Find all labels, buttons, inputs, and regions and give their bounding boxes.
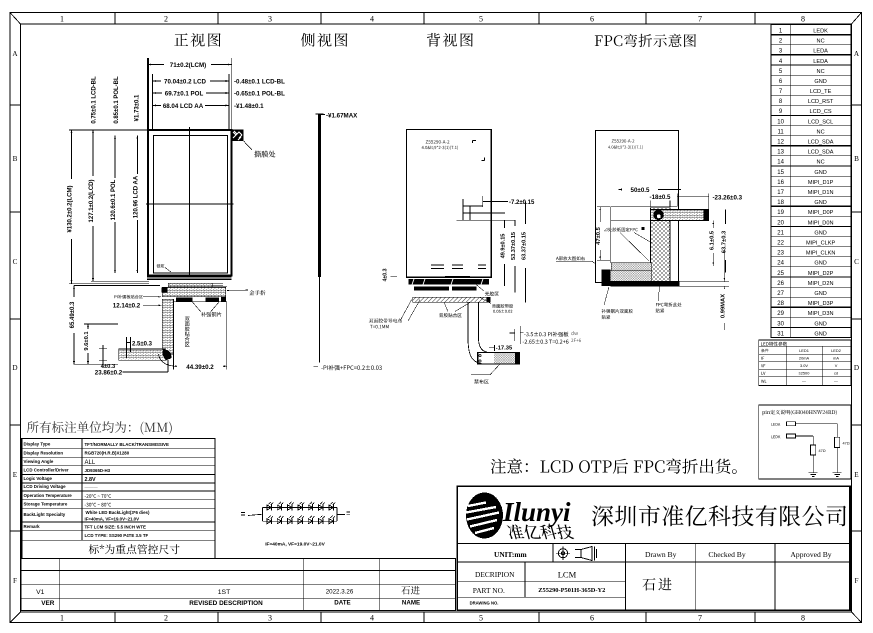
svg-text:13: 13 xyxy=(777,150,784,156)
svg-text:≥2500: ≥2500 xyxy=(799,371,811,376)
svg-text:-0.48±0.1 LCD-BL: -0.48±0.1 LCD-BL xyxy=(234,79,285,86)
svg-text:GND: GND xyxy=(814,200,826,206)
svg-text:LEDA: LEDA xyxy=(813,49,828,55)
svg-text:12: 12 xyxy=(777,140,784,146)
svg-text:-¥1.67MAX: -¥1.67MAX xyxy=(326,112,358,119)
svg-text:NC: NC xyxy=(817,160,825,166)
svg-text:LCD_CS: LCD_CS xyxy=(810,109,832,115)
svg-text:JD9365D-H3: JD9365D-H3 xyxy=(85,468,111,473)
svg-text:D: D xyxy=(854,364,859,372)
svg-text:White LED BackLight(3*6 dies): White LED BackLight(3*6 dies) xyxy=(86,510,150,515)
svg-text:MIPI_D3N: MIPI_D3N xyxy=(808,311,834,317)
svg-text:-18±0.5: -18±0.5 xyxy=(650,194,671,201)
svg-text:F: F xyxy=(13,577,17,585)
svg-text:LCM: LCM xyxy=(558,570,577,580)
svg-text:Operation Temperature: Operation Temperature xyxy=(24,493,73,498)
svg-text:Display Type: Display Type xyxy=(24,442,51,447)
svg-text:LEDA: LEDA xyxy=(813,59,828,65)
svg-text:6.1±0.5: 6.1±0.5 xyxy=(709,230,715,250)
svg-text:1ST: 1ST xyxy=(218,589,230,596)
svg-text:MIPI_D3P: MIPI_D3P xyxy=(808,301,834,307)
svg-text:7: 7 xyxy=(698,614,702,623)
svg-text:———: ——— xyxy=(85,485,99,490)
svg-text:47Ω: 47Ω xyxy=(818,449,825,453)
svg-text:MIPI_D2N: MIPI_D2N xyxy=(808,281,834,287)
svg-text:GND: GND xyxy=(814,291,826,297)
svg-text:63.37±0.15: 63.37±0.15 xyxy=(522,232,528,260)
svg-text:Z55290-P501H-365D-Y2: Z55290-P501H-365D-Y2 xyxy=(538,587,605,594)
svg-text:—: — xyxy=(802,379,806,384)
svg-text:C: C xyxy=(13,258,18,266)
svg-text:14: 14 xyxy=(777,160,784,166)
svg-text:53.37±0.15: 53.37±0.15 xyxy=(511,232,517,260)
svg-text:LED2: LED2 xyxy=(831,348,841,353)
svg-text:19: 19 xyxy=(777,210,784,216)
svg-text:6: 6 xyxy=(590,614,594,623)
svg-text:ALL: ALL xyxy=(85,460,96,466)
svg-text:V: V xyxy=(835,363,838,368)
svg-text:22: 22 xyxy=(777,241,784,247)
svg-text:18: 18 xyxy=(777,200,784,206)
svg-text:16: 16 xyxy=(777,180,784,186)
svg-text:-¥1.48±0.1: -¥1.48±0.1 xyxy=(234,103,264,110)
svg-text:3: 3 xyxy=(268,614,272,623)
svg-text:Display Resolution: Display Resolution xyxy=(24,450,64,455)
svg-text:LCD_SCL: LCD_SCL xyxy=(808,119,833,125)
svg-text:63.7±0.3: 63.7±0.3 xyxy=(722,230,728,253)
svg-text:BackLight Specialty: BackLight Specialty xyxy=(24,512,66,517)
svg-text:127.1±0.2(LCD): 127.1±0.2(LCD) xyxy=(89,180,95,223)
svg-text:MIPI_D2P: MIPI_D2P xyxy=(808,271,834,277)
svg-text:LCD_RST: LCD_RST xyxy=(808,99,834,105)
svg-text:LCD TYPE: SS290 P4TE 3.5 TF: LCD TYPE: SS290 P4TE 3.5 TF xyxy=(85,533,149,538)
svg-text:47±0.5: 47±0.5 xyxy=(596,226,602,244)
svg-text:20: 20 xyxy=(777,220,784,226)
svg-text:8: 8 xyxy=(801,614,805,623)
svg-text:20mA: 20mA xyxy=(799,356,810,361)
svg-text:GND: GND xyxy=(814,230,826,236)
svg-text:5: 5 xyxy=(479,15,483,24)
svg-text:A: A xyxy=(854,50,860,58)
svg-text:TFT/NORMALLY BLACK/TRANSMISSIV: TFT/NORMALLY BLACK/TRANSMISSIVE xyxy=(85,442,169,447)
svg-text:LCD Driving Voltage: LCD Driving Voltage xyxy=(24,484,67,489)
svg-text:A: A xyxy=(12,50,18,58)
svg-text:E: E xyxy=(13,471,18,479)
svg-text:IF=40mA, VF=19.0V~21.0V: IF=40mA, VF=19.0V~21.0V xyxy=(265,542,325,548)
svg-text:2: 2 xyxy=(164,15,168,24)
svg-text:—: — xyxy=(834,379,838,384)
svg-text:MIPI_D1P: MIPI_D1P xyxy=(808,180,834,186)
svg-text:MIPI_CLKN: MIPI_CLKN xyxy=(806,251,836,257)
svg-text:DECRIPION: DECRIPION xyxy=(475,570,515,579)
svg-text:MIPI_D0P: MIPI_D0P xyxy=(808,210,834,216)
svg-text:49.9±0.15: 49.9±0.15 xyxy=(501,234,507,259)
svg-text:0.75±0.1 LCD-BL: 0.75±0.1 LCD-BL xyxy=(92,76,98,124)
svg-text:cd: cd xyxy=(834,371,838,376)
svg-text:-23.26±0.3: -23.26±0.3 xyxy=(713,194,743,201)
svg-text:5: 5 xyxy=(479,614,483,623)
svg-text:MIPI_CLKP: MIPI_CLKP xyxy=(806,241,835,247)
svg-text:4±0.3: 4±0.3 xyxy=(383,268,389,281)
svg-text:C: C xyxy=(854,258,859,266)
svg-text:LCD_SDA: LCD_SDA xyxy=(808,150,834,156)
svg-text:8: 8 xyxy=(801,15,805,24)
svg-text:¥1.73±0.1: ¥1.73±0.1 xyxy=(135,94,141,121)
svg-text:26: 26 xyxy=(777,281,784,287)
svg-text:D: D xyxy=(12,364,17,372)
svg-text:120.6±0.1 POL: 120.6±0.1 POL xyxy=(111,179,117,220)
svg-text:Viewing Angle: Viewing Angle xyxy=(24,459,54,464)
svg-text:4: 4 xyxy=(370,614,374,623)
svg-text:B: B xyxy=(854,155,859,163)
svg-text:UNIT:mm: UNIT:mm xyxy=(494,550,528,559)
svg-text:LCD Controller/Driver: LCD Controller/Driver xyxy=(24,468,69,473)
svg-text:IF=40mA, VF=19.0V~21.0V: IF=40mA, VF=19.0V~21.0V xyxy=(85,517,140,522)
svg-text:69.7±0.1 POL: 69.7±0.1 POL xyxy=(165,91,204,98)
svg-text:MIPI_D0N: MIPI_D0N xyxy=(808,220,834,226)
svg-text:NC: NC xyxy=(817,39,825,45)
svg-text:30: 30 xyxy=(777,321,784,327)
svg-text:LCD_SDA: LCD_SDA xyxy=(808,140,834,146)
svg-text:17: 17 xyxy=(777,190,784,196)
svg-text:2.8V: 2.8V xyxy=(85,477,96,483)
svg-text:LED1: LED1 xyxy=(799,348,809,353)
svg-text:PART NO.: PART NO. xyxy=(473,586,505,595)
svg-text:mA: mA xyxy=(833,356,839,361)
svg-text:Checked By: Checked By xyxy=(708,550,746,559)
svg-text:2.5±0.3: 2.5±0.3 xyxy=(132,341,153,347)
svg-text:LCD_TE: LCD_TE xyxy=(810,89,832,95)
svg-text:¥130.2±0.2(LCM): ¥130.2±0.2(LCM) xyxy=(68,186,74,233)
svg-text:3.0V: 3.0V xyxy=(800,363,808,368)
svg-text:68.04 LCD AA: 68.04 LCD AA xyxy=(163,103,204,110)
svg-text:1: 1 xyxy=(60,614,64,623)
svg-text:V1: V1 xyxy=(36,589,45,596)
svg-text:25: 25 xyxy=(777,271,784,277)
svg-text:31: 31 xyxy=(777,331,784,337)
svg-text:1: 1 xyxy=(60,15,64,24)
svg-text:REVISED DESCRIPTION: REVISED DESCRIPTION xyxy=(189,600,263,607)
svg-text:VER: VER xyxy=(41,600,55,607)
svg-text:47Ω: 47Ω xyxy=(842,442,849,446)
svg-text:2: 2 xyxy=(164,614,168,623)
svg-text:120.96 LCD AA: 120.96 LCD AA xyxy=(133,175,139,218)
svg-text:-17.35: -17.35 xyxy=(496,345,513,351)
svg-text:B: B xyxy=(13,155,18,163)
svg-text:0.99MAX: 0.99MAX xyxy=(720,294,726,318)
svg-text:27: 27 xyxy=(777,291,784,297)
svg-text:Storage Temperature: Storage Temperature xyxy=(24,501,68,506)
svg-text:Remark: Remark xyxy=(24,524,41,529)
svg-text:4: 4 xyxy=(370,15,374,24)
svg-text:Drawn By: Drawn By xyxy=(645,550,677,559)
svg-text:E: E xyxy=(854,471,859,479)
svg-text:70.04±0.2 LCD: 70.04±0.2 LCD xyxy=(164,79,206,86)
svg-text:Approved By: Approved By xyxy=(790,550,831,559)
svg-text:GND: GND xyxy=(814,331,826,337)
svg-text:29: 29 xyxy=(777,311,784,317)
svg-text:15: 15 xyxy=(777,170,784,176)
svg-text:DATE: DATE xyxy=(334,600,350,607)
svg-text:9.6±0.1: 9.6±0.1 xyxy=(84,331,90,351)
svg-text:-0.65±0.1 POL-BL: -0.65±0.1 POL-BL xyxy=(234,91,285,98)
svg-text:LEDK: LEDK xyxy=(813,28,828,34)
svg-text:12.14±0.2: 12.14±0.2 xyxy=(113,303,141,310)
svg-text:F: F xyxy=(855,577,859,585)
svg-text:71±0.2(LCM): 71±0.2(LCM) xyxy=(170,62,206,69)
svg-text:11: 11 xyxy=(777,129,784,135)
svg-text:3: 3 xyxy=(268,15,272,24)
svg-text:2022.3.26: 2022.3.26 xyxy=(326,589,354,596)
svg-text:Ilunyi: Ilunyi xyxy=(502,497,571,527)
svg-text:GND: GND xyxy=(814,261,826,267)
svg-text:Logic Voltage: Logic Voltage xyxy=(24,476,53,481)
svg-text:10: 10 xyxy=(777,119,784,125)
svg-text:GND: GND xyxy=(814,79,826,85)
svg-text:NAME: NAME xyxy=(402,600,420,607)
svg-text:23.86±0.2: 23.86±0.2 xyxy=(95,370,123,377)
svg-text:44.39±0.2: 44.39±0.2 xyxy=(186,364,214,371)
svg-text:6: 6 xyxy=(590,15,594,24)
svg-text:DRAWING NO.: DRAWING NO. xyxy=(470,600,499,605)
svg-text:GND: GND xyxy=(814,321,826,327)
svg-text:GND: GND xyxy=(814,170,826,176)
svg-text:7: 7 xyxy=(698,15,702,24)
svg-text:23: 23 xyxy=(777,251,784,257)
svg-text:24: 24 xyxy=(777,261,784,267)
svg-text:-7.2±0.15: -7.2±0.15 xyxy=(509,200,535,206)
svg-text:65.49±0.3: 65.49±0.3 xyxy=(70,301,76,328)
svg-text:TFT LCM SIZE: 5.5 INCH WTE: TFT LCM SIZE: 5.5 INCH WTE xyxy=(85,525,147,530)
svg-text:NC: NC xyxy=(817,69,825,75)
svg-text:NC: NC xyxy=(817,129,825,135)
svg-text:RGB720(H.R.B)X1280: RGB720(H.R.B)X1280 xyxy=(85,451,130,456)
svg-text:28: 28 xyxy=(777,301,784,307)
svg-text:0.85±0.1 POL-BL: 0.85±0.1 POL-BL xyxy=(114,76,120,124)
svg-text:21: 21 xyxy=(777,230,784,236)
svg-text:MIPI_D1N: MIPI_D1N xyxy=(808,190,834,196)
